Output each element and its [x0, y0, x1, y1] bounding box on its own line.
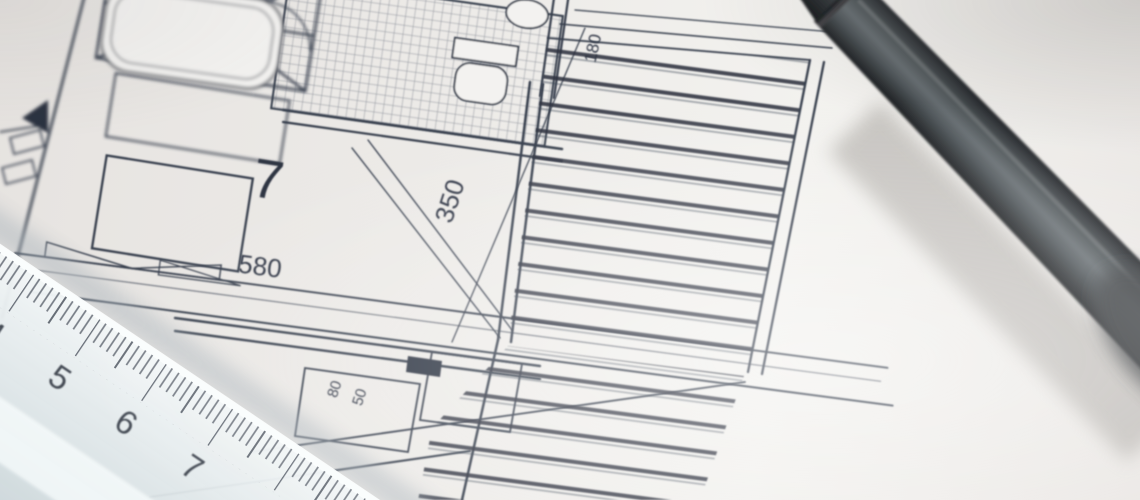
ruler: 4 5 6 7 [0, 191, 501, 500]
dimension-label-80: 80 [324, 379, 345, 400]
blueprint-photo-svg: 7 580 350 180 80 50 [0, 0, 1140, 500]
room-number-label: 7 [248, 146, 288, 212]
room-rect [92, 155, 253, 271]
dimension-label-350: 350 [429, 176, 471, 227]
dimension-label-580: 580 [237, 248, 284, 283]
bathtub [98, 0, 287, 92]
dimension-label-50: 50 [349, 387, 370, 408]
blueprint-photo-scene: 7 580 350 180 80 50 [0, 0, 1140, 500]
